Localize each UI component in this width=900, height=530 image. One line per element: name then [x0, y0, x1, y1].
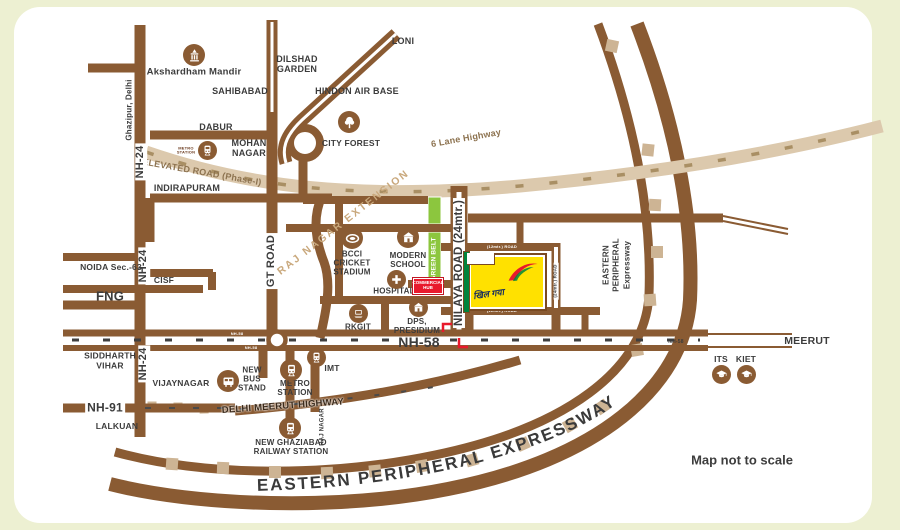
label-hospital: HOSPITAL	[373, 288, 414, 297]
its-gradcap-icon	[712, 365, 731, 384]
label-city-forest: CITY FOREST	[322, 139, 380, 149]
logo-text: खिल गया	[472, 285, 504, 302]
label-akshardham-mandir: Akshardham Mandir	[147, 68, 242, 79]
label-nh91: NH-91	[85, 402, 125, 415]
city-forest-tree-icon	[338, 111, 360, 133]
temple-icon	[183, 44, 205, 66]
hospital-icon	[387, 270, 406, 289]
label-lalkuan: LALKUAN	[96, 422, 138, 432]
site-corner-notch	[467, 253, 495, 265]
label-its: ITS	[714, 355, 728, 365]
label-sahibabad: SAHIBABAD	[212, 86, 268, 96]
rkgit-laptop-icon	[349, 304, 368, 323]
label-mohan-nagar: MOHAN NAGAR	[232, 138, 267, 158]
label-metro-station: METRO STATION	[277, 380, 312, 398]
label-indirapuram: INDIRAPURAM	[154, 183, 220, 193]
label-meerut: MEERUT	[784, 336, 830, 348]
label-green-belt: GREEN BELT	[430, 237, 437, 280]
label-gt-road: GT ROAD	[266, 233, 278, 289]
metro-station-icon	[280, 359, 302, 381]
map-canvas: EASTERN PERIPHERAL EXPRESSWAY LONI DILSH…	[0, 0, 900, 530]
label-new-bus-stand: NEW BUS STAND	[238, 367, 266, 394]
label-imt: IMT	[324, 364, 339, 374]
label-new-ghaziabad-railway-station: NEW GHAZIABAD RAILWAY STATION	[254, 439, 329, 457]
logo-swoosh-icon	[505, 260, 541, 282]
label-noida-sec63: NOIDA Sec.-63	[80, 263, 142, 273]
label-nh58-small-3: NH-58	[668, 340, 683, 346]
label-bcci-cricket-stadium: BCCI CRICKET STADIUM	[333, 251, 370, 278]
label-nh58-big: NH-58	[398, 335, 439, 351]
label-dilshad-garden: DILSHAD GARDEN	[276, 54, 317, 74]
map-not-to-scale-note: Map not to scale	[691, 453, 793, 468]
label-dabur: DABUR	[199, 122, 233, 132]
label-rkgit: RKGIT	[345, 324, 371, 333]
metro-station-upper-icon	[198, 141, 217, 160]
label-cisf: CISF	[154, 276, 174, 286]
label-siddharth-vihar: SIDDHARTH VIHAR	[84, 351, 136, 370]
label-nh58-small-2: NH-58	[245, 346, 258, 350]
label-fng: FNG	[96, 290, 124, 305]
label-24mtr-road: (24mtr.) ROAD	[554, 262, 559, 299]
kiet-gradcap-icon	[737, 365, 756, 384]
label-nh58-small-1: NH-58	[231, 332, 244, 336]
bus-stand-icon	[217, 370, 239, 392]
label-hindon-air-base: HINDON AIR BASE	[315, 86, 399, 96]
project-site-marker: खिल गया	[467, 253, 547, 311]
commercial-hub-badge: COMMERCIAL HUB	[413, 278, 443, 294]
imt-train-icon	[307, 348, 326, 367]
label-nh24-top: NH-24	[135, 144, 147, 181]
label-epe-vertical: EASTERN PERIPHERAL Expressway	[601, 238, 632, 292]
label-metro-station-upper: METRO STATION	[177, 147, 195, 156]
railway-station-icon	[279, 417, 301, 439]
label-modern-school: MODERN SCHOOL	[390, 252, 427, 270]
label-vijaynagar: VIJAYNAGAR	[153, 379, 210, 389]
road-network	[63, 20, 788, 437]
label-12mtr-road-top: (12mtr.) ROAD	[487, 245, 517, 249]
label-nh24-low: NH-24	[138, 346, 150, 383]
label-kiet: KIET	[736, 355, 756, 365]
label-loni: LONI	[392, 36, 414, 46]
label-ghazipur-delhi: Ghazipur, Delhi	[126, 79, 135, 140]
dps-school-icon	[409, 298, 428, 317]
modern-school-icon	[397, 226, 419, 248]
gt-nh58-roundabout	[269, 332, 286, 349]
cricket-stadium-icon	[341, 227, 363, 249]
